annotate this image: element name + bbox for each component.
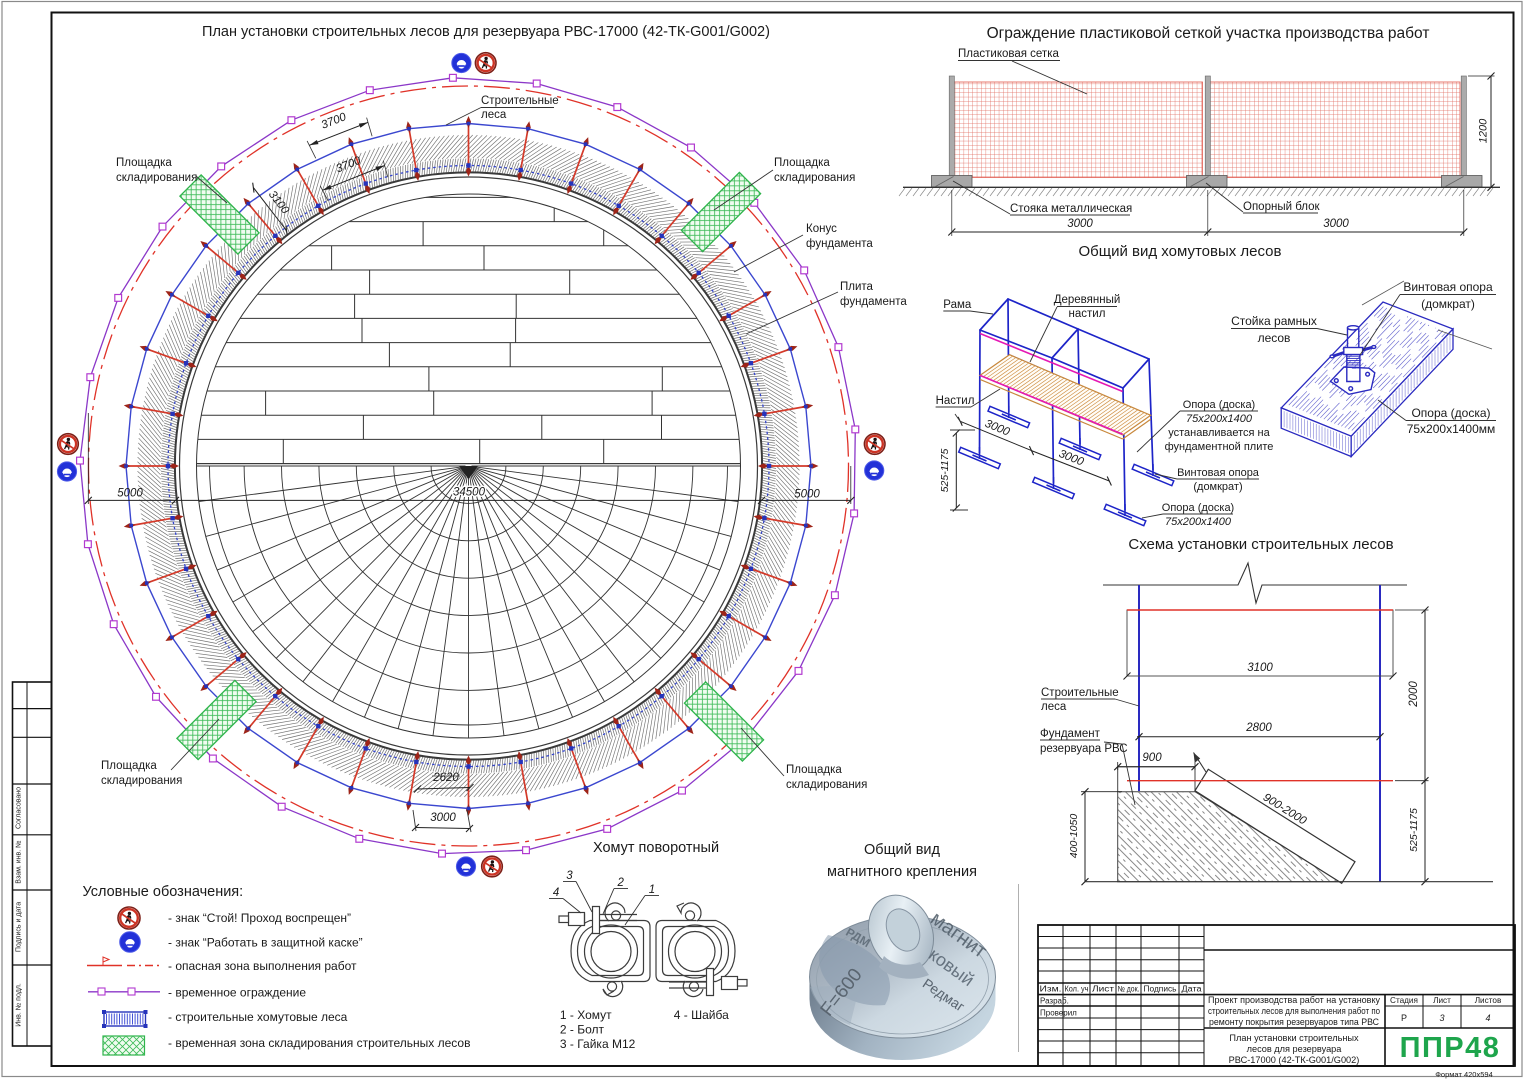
svg-text:Фундамент: Фундамент: [1040, 728, 1101, 740]
svg-text:2620: 2620: [432, 772, 459, 784]
svg-text:Площадка: Площадка: [116, 157, 172, 169]
svg-text:900: 900: [1142, 752, 1162, 764]
svg-text:75х200х1400: 75х200х1400: [1165, 516, 1232, 528]
svg-text:Подпись: Подпись: [1144, 985, 1177, 994]
svg-text:Инв. № подл.: Инв. № подл.: [16, 983, 23, 1027]
svg-text:План установки строительных ле: План установки строительных лесов для ре…: [202, 24, 770, 40]
svg-text:525-1175: 525-1175: [939, 449, 951, 493]
svg-text:3: 3: [566, 870, 573, 882]
svg-text:Формат 420х594: Формат 420х594: [1435, 1070, 1493, 1079]
svg-text:2: 2: [616, 877, 624, 889]
svg-text:3 - Гайка М12: 3 - Гайка М12: [560, 1037, 636, 1051]
svg-text:Опорный блок: Опорный блок: [1243, 201, 1321, 213]
svg-text:4: 4: [553, 887, 559, 899]
svg-text:устанавливается на: устанавливается на: [1168, 427, 1270, 439]
svg-text:1200: 1200: [1478, 118, 1490, 143]
svg-text:Дата: Дата: [1182, 985, 1203, 994]
svg-text:(домкрат): (домкрат): [1421, 297, 1475, 311]
svg-text:Опора (доска): Опора (доска): [1162, 502, 1234, 514]
svg-text:- знак “Работать в защитной ка: - знак “Работать в защитной каске”: [168, 936, 363, 950]
svg-text:лесов: лесов: [1258, 331, 1291, 345]
svg-text:Винтовая опора: Винтовая опора: [1177, 467, 1260, 479]
svg-text:(домкрат): (домкрат): [1193, 481, 1242, 493]
svg-text:3000: 3000: [430, 812, 456, 824]
svg-text:Опора (доска): Опора (доска): [1411, 406, 1490, 420]
svg-text:Строительные: Строительные: [1041, 687, 1119, 699]
svg-text:4 - Шайба: 4 - Шайба: [674, 1008, 729, 1022]
svg-text:складирования: складирования: [774, 172, 855, 184]
svg-text:Рама: Рама: [943, 299, 972, 311]
svg-text:складирования: складирования: [116, 172, 197, 184]
svg-text:Общий вид: Общий вид: [864, 842, 941, 858]
svg-text:фундамента: фундамента: [840, 296, 907, 308]
svg-text:Пластиковая сетка: Пластиковая сетка: [958, 48, 1059, 60]
svg-text:Условные обозначения:: Условные обозначения:: [83, 884, 244, 900]
svg-text:Винтовая опора: Винтовая опора: [1403, 280, 1493, 294]
svg-text:Проверил: Проверил: [1040, 1009, 1077, 1018]
svg-text:2000: 2000: [1408, 681, 1420, 708]
svg-text:- знак “Стой! Проход воспрещен: - знак “Стой! Проход воспрещен”: [168, 911, 351, 925]
svg-text:лесов для резервуара: лесов для резервуара: [1247, 1044, 1343, 1054]
svg-text:3100: 3100: [1247, 662, 1273, 674]
svg-text:3000: 3000: [1067, 218, 1093, 230]
svg-text:Площадка: Площадка: [101, 760, 157, 772]
svg-text:резервуара РВС: резервуара РВС: [1040, 743, 1128, 755]
svg-text:строительных лесов для выполне: строительных лесов для выполнения работ …: [1208, 1006, 1380, 1016]
svg-text:34500: 34500: [453, 487, 486, 499]
svg-text:Плита: Плита: [840, 281, 874, 293]
svg-text:5000: 5000: [117, 488, 143, 500]
svg-text:Площадка: Площадка: [786, 764, 842, 776]
svg-text:Строительные: Строительные: [481, 95, 559, 107]
svg-text:3000: 3000: [1323, 218, 1349, 230]
svg-text:Настил: Настил: [936, 395, 975, 407]
svg-text:Ограждение пластиковой сеткой: Ограждение пластиковой сеткой участка пр…: [987, 25, 1430, 42]
svg-text:настил: настил: [1069, 308, 1106, 320]
svg-text:Проект производства работ на у: Проект производства работ на установку: [1208, 995, 1381, 1005]
svg-text:складирования: складирования: [101, 775, 182, 787]
svg-text:Площадка: Площадка: [774, 157, 830, 169]
svg-text:Листов: Листов: [1475, 996, 1502, 1005]
svg-text:фундамента: фундамента: [806, 238, 873, 250]
svg-text:ППР48: ППР48: [1400, 1032, 1501, 1064]
svg-text:Кол. уч: Кол. уч: [1065, 985, 1089, 994]
svg-text:- опасная зона выполнения рабо: - опасная зона выполнения работ: [168, 959, 357, 973]
svg-text:Согласовано: Согласовано: [16, 787, 23, 829]
svg-text:леса: леса: [481, 109, 507, 121]
svg-text:400-1050: 400-1050: [1068, 814, 1080, 859]
svg-text:Изм.: Изм.: [1040, 985, 1062, 994]
svg-text:Хомут поворотный: Хомут поворотный: [593, 840, 719, 856]
svg-text:Разраб.: Разраб.: [1040, 997, 1069, 1006]
svg-text:3: 3: [1439, 1013, 1444, 1023]
svg-text:2800: 2800: [1245, 722, 1272, 734]
svg-text:- временное ограждение: - временное ограждение: [168, 986, 306, 1000]
svg-text:Общий вид хомутовых лесов: Общий вид хомутовых лесов: [1079, 243, 1282, 260]
svg-text:ремонту покрытия резервуаров т: ремонту покрытия резервуаров типа РВС: [1209, 1017, 1380, 1027]
svg-text:- строительные хомутовые леса: - строительные хомутовые леса: [168, 1010, 348, 1024]
svg-text:складирования: складирования: [786, 779, 867, 791]
svg-text:Стояка металлическая: Стояка металлическая: [1010, 203, 1132, 215]
svg-text:Стадия: Стадия: [1390, 996, 1418, 1005]
svg-text:РВС-17000 (42-ТК-G001/G002): РВС-17000 (42-ТК-G001/G002): [1229, 1055, 1360, 1065]
svg-text:Опора (доска): Опора (доска): [1183, 399, 1255, 411]
svg-text:Деревянный: Деревянный: [1054, 294, 1121, 306]
svg-text:5000: 5000: [794, 489, 820, 501]
svg-text:1 - Хомут: 1 - Хомут: [560, 1008, 612, 1022]
svg-text:Взам. инв. №: Взам. инв. №: [16, 840, 23, 883]
svg-text:Схема установки строительных л: Схема установки строительных лесов: [1128, 536, 1393, 553]
svg-text:Лист: Лист: [1433, 996, 1451, 1005]
svg-text:525-1175: 525-1175: [1408, 808, 1420, 852]
svg-text:магнитного крепления: магнитного крепления: [827, 864, 977, 880]
svg-text:1: 1: [649, 884, 655, 896]
svg-text:Р: Р: [1401, 1013, 1407, 1023]
svg-text:фундаментной плите: фундаментной плите: [1165, 441, 1274, 453]
svg-text:75х200х1400: 75х200х1400: [1186, 413, 1253, 425]
svg-text:- временная зона складирования: - временная зона складирования строитель…: [168, 1036, 470, 1050]
svg-text:75х200х1400мм: 75х200х1400мм: [1407, 422, 1496, 436]
svg-text:Лист: Лист: [1092, 985, 1114, 994]
svg-text:№ док.: № док.: [1118, 985, 1140, 994]
svg-text:4: 4: [1485, 1013, 1490, 1023]
svg-text:Стойка рамных: Стойка рамных: [1231, 314, 1317, 328]
svg-text:2 - Болт: 2 - Болт: [560, 1023, 605, 1037]
svg-text:План установки строительных: План установки строительных: [1229, 1033, 1359, 1043]
svg-text:Подпись и дата: Подпись и дата: [16, 902, 23, 952]
svg-text:леса: леса: [1041, 701, 1067, 713]
svg-text:Конус: Конус: [806, 223, 837, 235]
